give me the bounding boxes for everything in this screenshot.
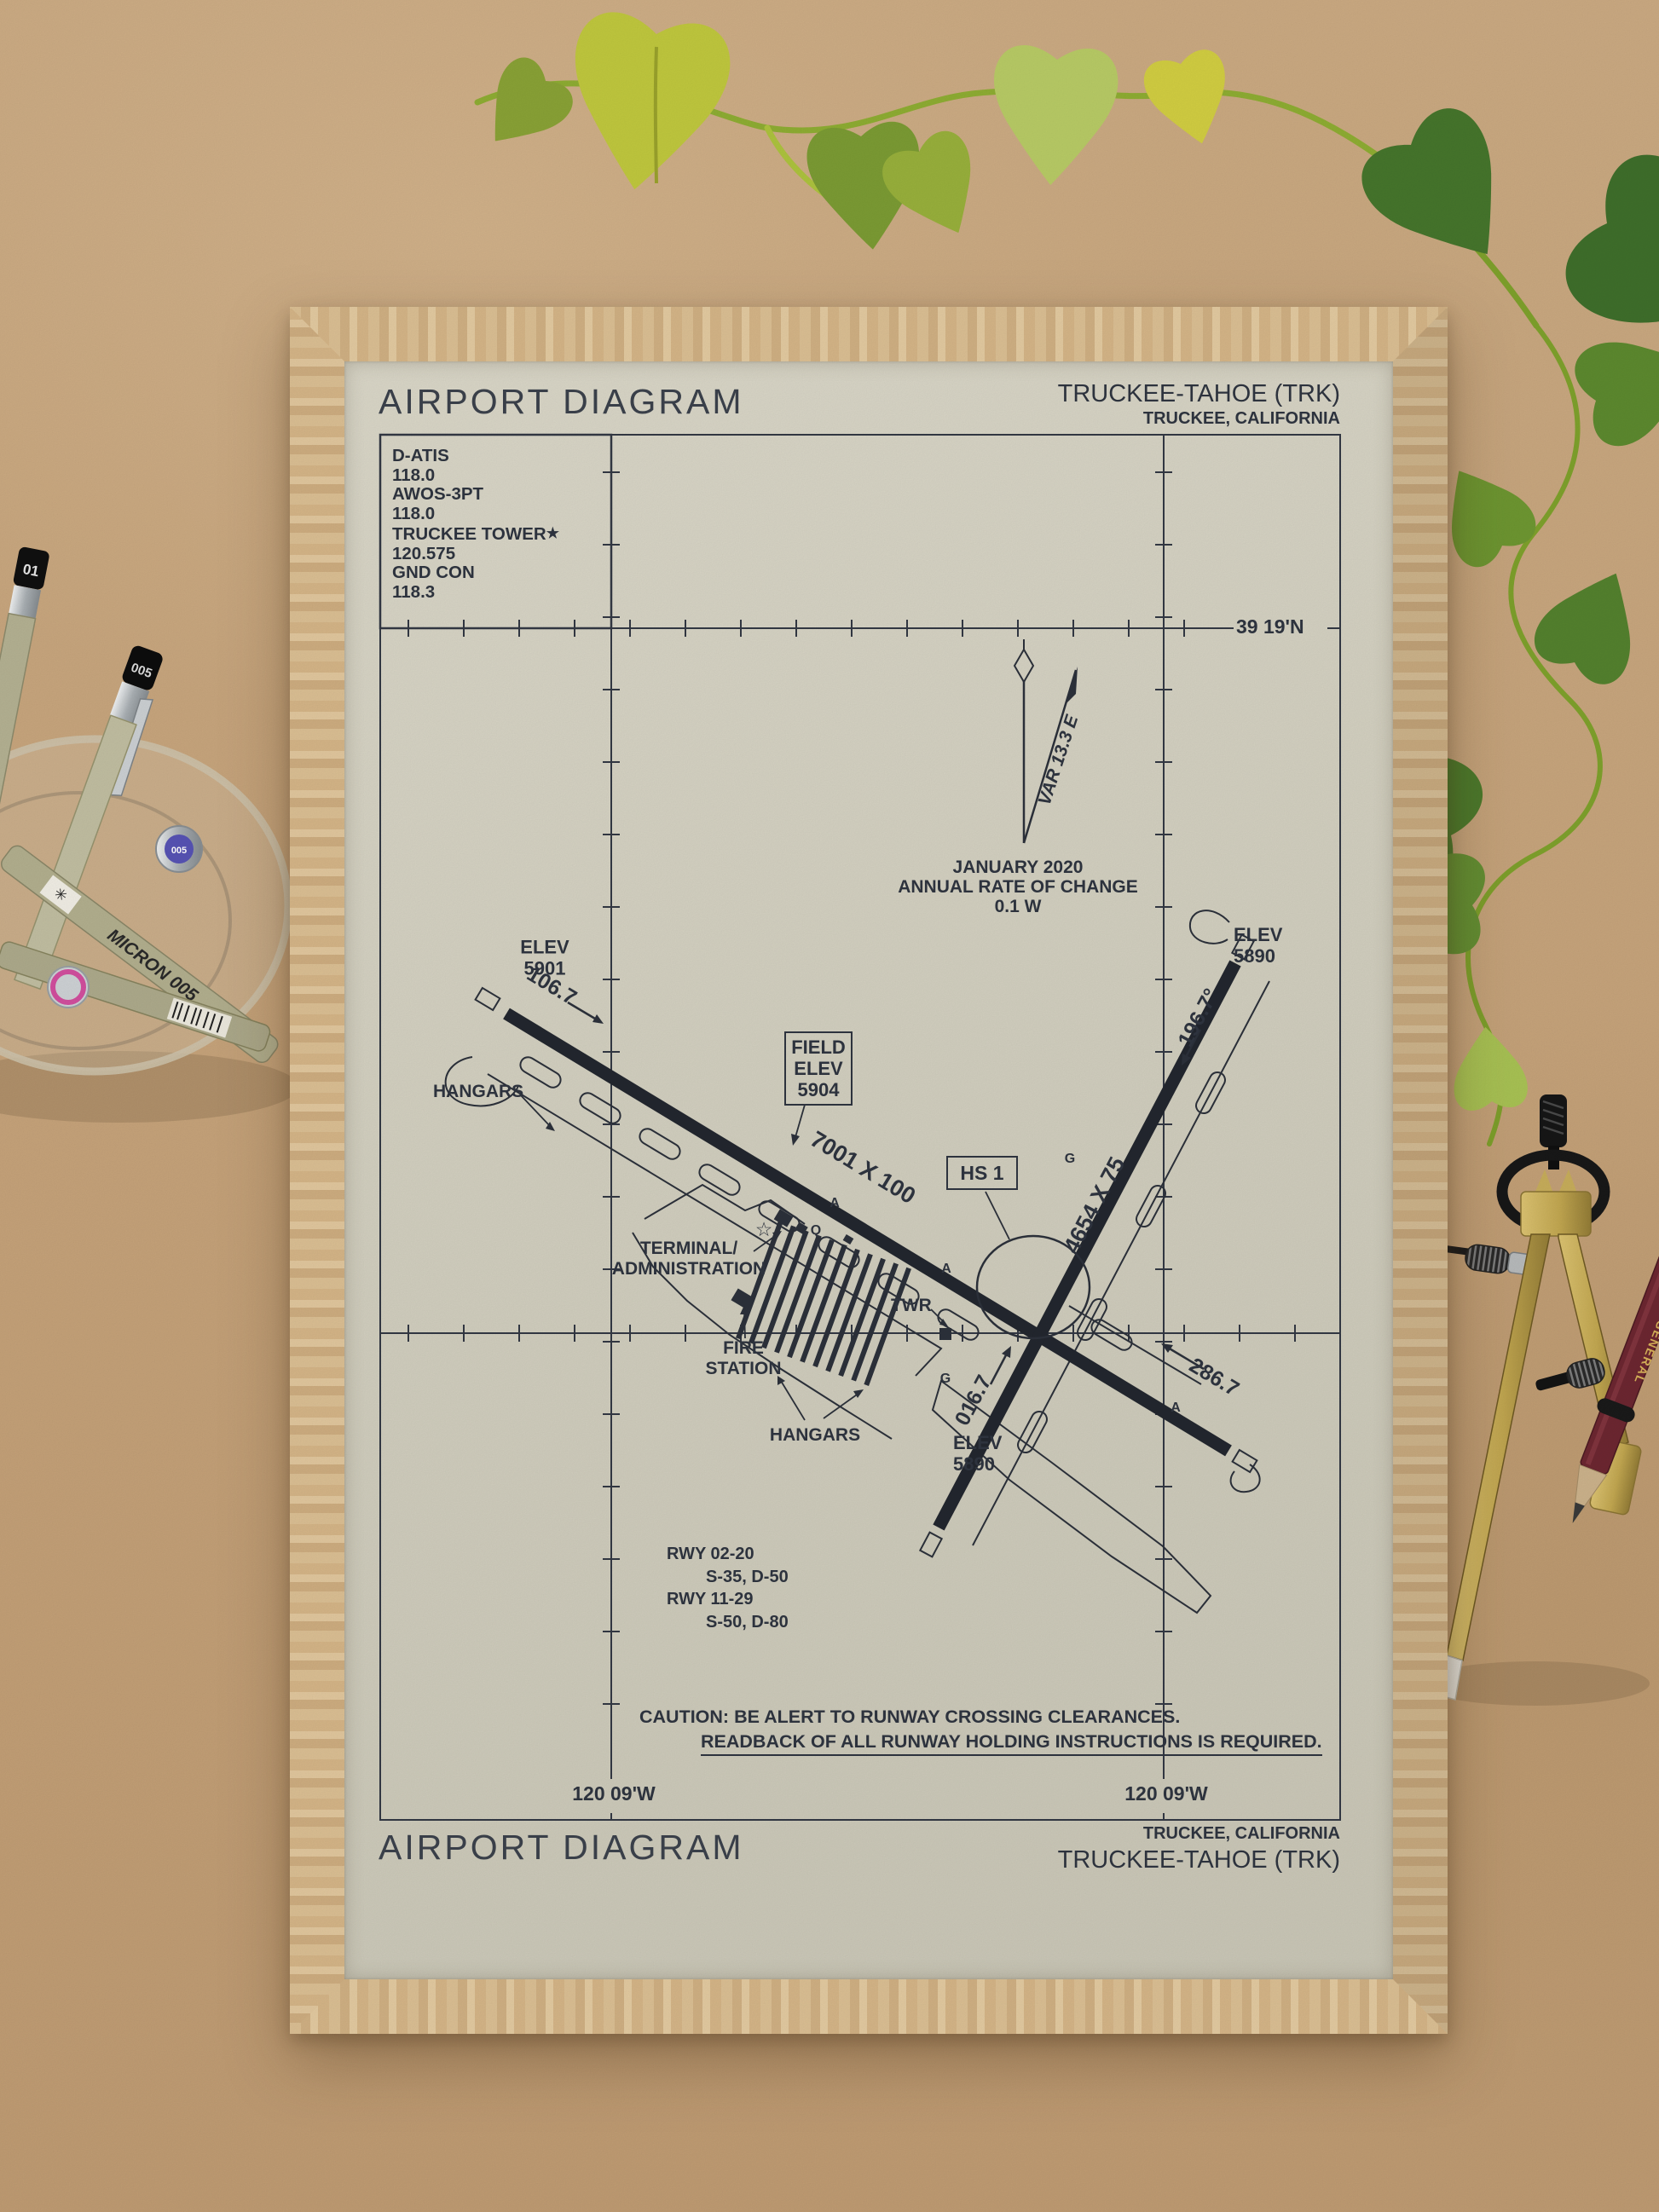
hs1-leader — [986, 1192, 1009, 1239]
tower-label: TWR — [891, 1296, 932, 1316]
freq-line: 118.3 — [392, 583, 559, 603]
leaf-yellow-green — [558, 8, 735, 200]
frame-bar-top — [290, 307, 1448, 361]
magnetic-rate: ANNUAL RATE OF CHANGE — [873, 877, 1163, 897]
micron-cap-pink — [48, 967, 89, 1008]
freq-line: D-ATIS — [392, 447, 559, 466]
frequency-list: D-ATIS 118.0 AWOS-3PT 118.0 TRUCKEE TOWE… — [392, 447, 559, 603]
taxiway-letter: G — [940, 1372, 951, 1387]
terminal-label: TERMINAL/ ADMINISTRATION — [612, 1239, 766, 1279]
compass-ring — [1502, 1155, 1604, 1228]
pencil-wood — [1559, 1464, 1606, 1528]
micron-pen-lower — [0, 940, 272, 1053]
pen-cap-label: 005 — [129, 661, 153, 682]
frame-bar-bottom — [290, 1979, 1448, 2034]
pen-brand-label: MICRON 005 — [104, 925, 202, 1005]
fire-station-label: FIRE STATION — [705, 1338, 781, 1379]
pencil: GENERAL — [1554, 1222, 1659, 1530]
micron-pen-body: ✳ MICRON 005 — [0, 842, 281, 1066]
runway-data-table: RWY 02-20 S-35, D-50 RWY 11-29 S-50, D-8… — [667, 1543, 789, 1633]
field-elev-box: FIELD ELEV 5904 — [784, 1031, 853, 1106]
freq-line: AWOS-3PT — [392, 485, 559, 505]
chart-city: TRUCKEE, CALIFORNIA — [1143, 409, 1340, 429]
frame-bar-right — [1393, 307, 1448, 2034]
airport-diagram-print: AIRPORT DIAGRAM TRUCKEE-TAHOE (TRK) TRUC… — [344, 361, 1393, 1979]
footer-city: TRUCKEE, CALIFORNIA — [1143, 1824, 1340, 1844]
magnetic-rate-value: 0.1 W — [873, 897, 1163, 916]
pencil-graphite — [1568, 1502, 1585, 1525]
taxiway-letter: A — [829, 1196, 840, 1211]
hotspot-box: HS 1 — [946, 1156, 1018, 1190]
compass-hinge — [1521, 1170, 1591, 1236]
magnetic-date-block: JANUARY 2020 ANNUAL RATE OF CHANGE 0.1 W — [873, 858, 1163, 916]
caution-line-2: READBACK OF ALL RUNWAY HOLDING INSTRUCTI… — [701, 1731, 1322, 1756]
caution-line-1: CAUTION: BE ALERT TO RUNWAY CROSSING CLE… — [639, 1707, 1180, 1728]
glass-jar — [0, 739, 288, 1071]
chart-title: AIRPORT DIAGRAM — [379, 382, 744, 422]
freq-line: 120.575 — [392, 545, 559, 564]
jar-shadow — [0, 1051, 298, 1123]
picture-frame: AIRPORT DIAGRAM TRUCKEE-TAHOE (TRK) TRUC… — [290, 307, 1448, 2034]
hangars-south-label: HANGARS — [770, 1425, 860, 1446]
photo-scene: 01 005 ✳ MICRON 005 005 — [0, 0, 1659, 2212]
taxiway-letter: G — [1065, 1152, 1075, 1167]
footer-title: AIRPORT DIAGRAM — [379, 1828, 744, 1868]
compass-leg-left — [1447, 1234, 1550, 1660]
pen-cap-label: 005 — [171, 846, 187, 856]
clamp-screw — [1533, 1356, 1607, 1399]
chart-airport-name: TRUCKEE-TAHOE (TRK) — [1058, 380, 1340, 408]
taxiway-letter: A — [941, 1262, 951, 1277]
compass-leg-right — [1558, 1234, 1628, 1451]
elev-rwy02: ELEV 5890 — [953, 1432, 1002, 1476]
pencil-clamp — [1589, 1439, 1642, 1516]
longitude-label-right: 120 09'W — [1124, 1782, 1208, 1805]
elev-rwy11: ELEV 5901 — [520, 937, 569, 980]
true-north-diamond — [1014, 650, 1033, 682]
magnetic-date: JANUARY 2020 — [873, 858, 1163, 877]
micron-cap-purple: 005 — [156, 826, 202, 872]
longitude-label-left: 120 09'W — [572, 1782, 656, 1805]
latitude-label: 39 19'N — [1236, 615, 1304, 638]
micron-pen-005: 005 — [12, 644, 171, 993]
micron-pen-01: 01 — [0, 546, 50, 937]
footer-airport-name: TRUCKEE-TAHOE (TRK) — [1058, 1846, 1340, 1874]
freq-line-tower: TRUCKEE TOWER★ — [392, 524, 559, 545]
taxiway-letter: Q — [811, 1223, 821, 1239]
freq-line: 118.0 — [392, 466, 559, 486]
hangars-west-label: HANGARS — [433, 1082, 523, 1102]
compass-shadow — [1419, 1661, 1650, 1706]
freq-line: GND CON — [392, 563, 559, 583]
pencil-brand-label: GENERAL — [1632, 1319, 1659, 1386]
tower-label: TRUCKEE TOWER — [392, 524, 546, 544]
freq-line: 118.0 — [392, 505, 559, 524]
beam-screw — [1464, 1244, 1540, 1279]
taxiway-letter: A — [1171, 1401, 1181, 1416]
frame-bar-left — [290, 307, 344, 2034]
pen-cap-label: 01 — [21, 561, 40, 580]
rubber-band — [1595, 1396, 1637, 1424]
part-time-star-icon: ★ — [546, 525, 559, 541]
elev-rwy20: ELEV 5890 — [1234, 924, 1282, 967]
beacon-star-icon: ☆ — [755, 1218, 773, 1240]
compass-knob — [1540, 1094, 1567, 1170]
svg-text:✳: ✳ — [50, 884, 71, 905]
